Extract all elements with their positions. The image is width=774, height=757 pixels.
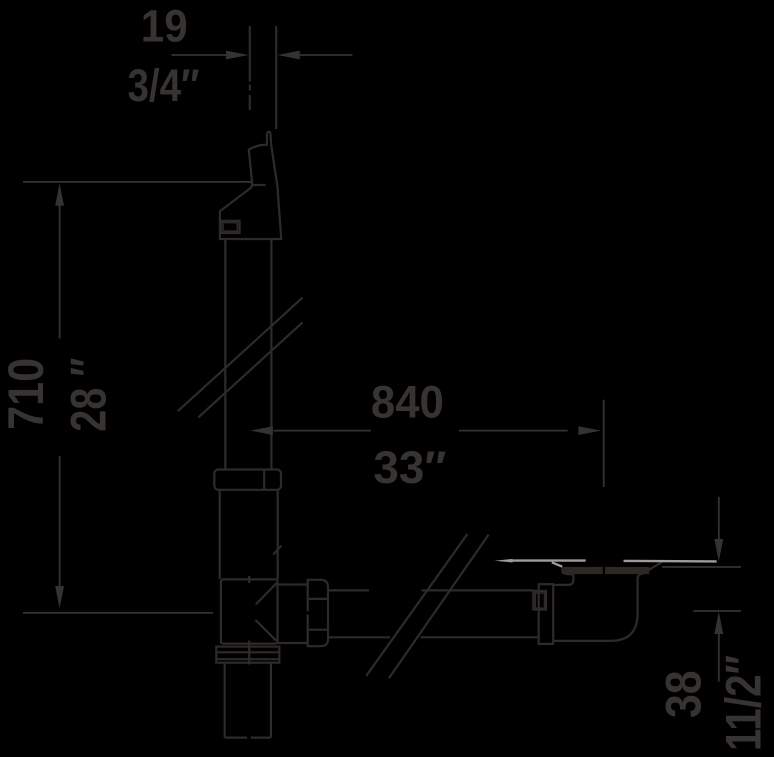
svg-text:38: 38 [655,670,711,718]
svg-text:33″: 33″ [373,442,446,493]
svg-text:840: 840 [371,377,444,428]
svg-text:3/4″: 3/4″ [128,60,200,111]
svg-text:28 ″: 28 ″ [61,358,117,432]
svg-text:19: 19 [141,1,188,52]
svg-text:11/2″: 11/2″ [716,655,772,751]
svg-text:710: 710 [0,358,54,430]
